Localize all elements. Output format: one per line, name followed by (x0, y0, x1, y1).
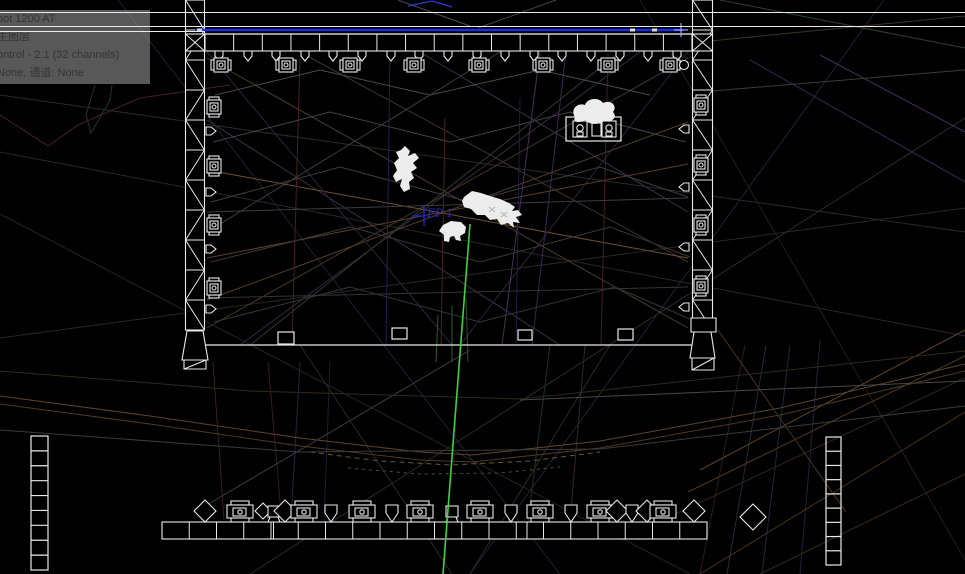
moving-head-fixture[interactable] (533, 58, 553, 72)
truss-base-left[interactable] (182, 331, 208, 369)
truss-clamp[interactable] (206, 188, 216, 196)
speaker-fixture[interactable] (349, 501, 375, 522)
speaker-fixture[interactable] (650, 501, 676, 522)
truss-clamp[interactable] (206, 305, 216, 313)
moving-head-fixture[interactable] (340, 58, 360, 72)
truss-clamp[interactable] (206, 245, 216, 253)
tooltip-protocol: ontrol - 2.1 (32 channels) (0, 46, 150, 64)
moving-head-fixture[interactable] (660, 58, 680, 72)
truss-clamp[interactable] (679, 183, 689, 191)
floor-marker-rect (518, 330, 532, 340)
diamond-marker[interactable] (194, 500, 216, 522)
ladder-left[interactable] (31, 436, 48, 570)
diamond-marker[interactable] (740, 504, 766, 530)
truss-junction[interactable] (186, 34, 205, 51)
cad-viewport[interactable]: pot 1200 AT 主图层 ontrol - 2.1 (32 channel… (0, 0, 965, 574)
tooltip-patch: None, 通道: None (0, 64, 150, 82)
moving-head-fixture[interactable] (211, 58, 231, 72)
truss-clamp[interactable] (679, 125, 689, 133)
truss-clamp[interactable] (505, 505, 517, 522)
truss-clamp[interactable] (244, 51, 252, 61)
truss-clamp[interactable] (644, 51, 652, 61)
truss-clamp[interactable] (679, 303, 689, 311)
truss-clamp[interactable] (679, 243, 689, 251)
truss-clamp[interactable] (587, 51, 595, 61)
moving-head-fixture[interactable] (207, 97, 221, 117)
speaker-fixture[interactable] (527, 501, 553, 522)
moving-head-fixture[interactable] (404, 58, 424, 72)
moving-head-fixture[interactable] (207, 156, 221, 176)
speaker-fixture[interactable] (407, 501, 433, 522)
truss-clamp[interactable] (206, 127, 216, 135)
moving-head-fixture[interactable] (276, 58, 296, 72)
moving-head-fixture[interactable] (598, 58, 618, 72)
moving-head-fixture[interactable] (694, 215, 708, 235)
floor-marker-rect (278, 332, 294, 344)
truss-clamp[interactable] (329, 51, 337, 61)
fixture-tooltip: pot 1200 AT 主图层 ontrol - 2.1 (32 channel… (0, 10, 150, 84)
speaker-fixture[interactable] (467, 501, 493, 522)
moving-head-fixture[interactable] (469, 58, 489, 72)
moving-head-fixture[interactable] (694, 95, 708, 115)
scene-svg (0, 0, 965, 574)
truss-clamp[interactable] (444, 51, 452, 61)
speaker-fixture[interactable] (291, 501, 317, 522)
truss-clamp[interactable] (565, 505, 577, 522)
guide-line[interactable] (0, 12, 965, 13)
guide-line[interactable] (0, 31, 205, 32)
truss-clamp[interactable] (501, 51, 509, 61)
truss-clamp[interactable] (626, 505, 638, 522)
floor-marker-rect (392, 328, 407, 339)
front-ground-truss[interactable] (162, 522, 707, 539)
truss-clamp[interactable] (387, 51, 395, 61)
guide-line[interactable] (0, 26, 965, 27)
tree-model[interactable] (573, 99, 615, 124)
background-wireframe (0, 0, 965, 574)
moving-head-fixture[interactable] (694, 155, 708, 175)
truss-clamp[interactable] (301, 51, 309, 61)
speaker-fixture[interactable] (227, 501, 253, 522)
truss-clamp[interactable] (386, 505, 398, 522)
human-figure-model[interactable] (393, 146, 419, 192)
moving-head-fixture[interactable] (207, 278, 221, 298)
diamond-marker[interactable] (683, 500, 705, 522)
truss-base-right[interactable] (690, 318, 716, 370)
moving-head-fixture[interactable] (694, 276, 708, 296)
moving-head-fixture[interactable] (207, 215, 221, 235)
floor-marker-rect (618, 329, 633, 340)
ep1-label[interactable]: EP 1 (427, 205, 452, 221)
truss-junction[interactable] (693, 34, 713, 51)
overhead-truss[interactable] (185, 34, 713, 51)
aux-clamp-circle[interactable] (680, 61, 689, 70)
